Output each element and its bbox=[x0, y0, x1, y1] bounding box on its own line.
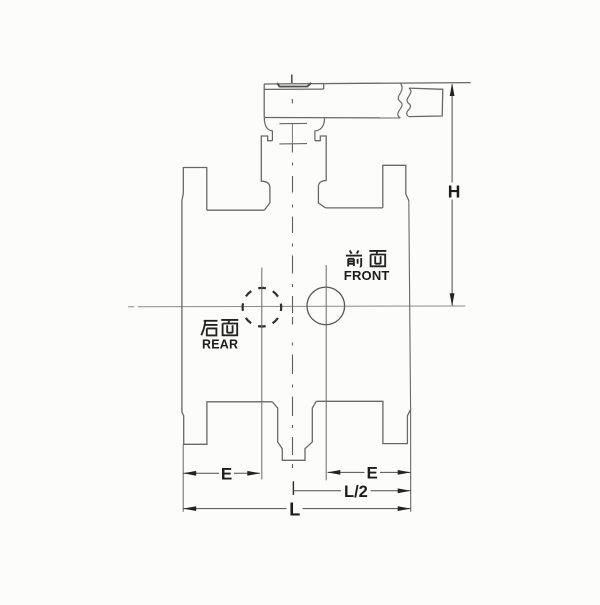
svg-text:L/2: L/2 bbox=[344, 483, 368, 501]
svg-text:E: E bbox=[367, 463, 378, 482]
svg-text:FRONT: FRONT bbox=[344, 268, 390, 283]
svg-text:H: H bbox=[448, 181, 461, 201]
svg-text:E: E bbox=[221, 464, 232, 483]
svg-text:L: L bbox=[289, 499, 300, 519]
svg-text:REAR: REAR bbox=[202, 338, 238, 352]
